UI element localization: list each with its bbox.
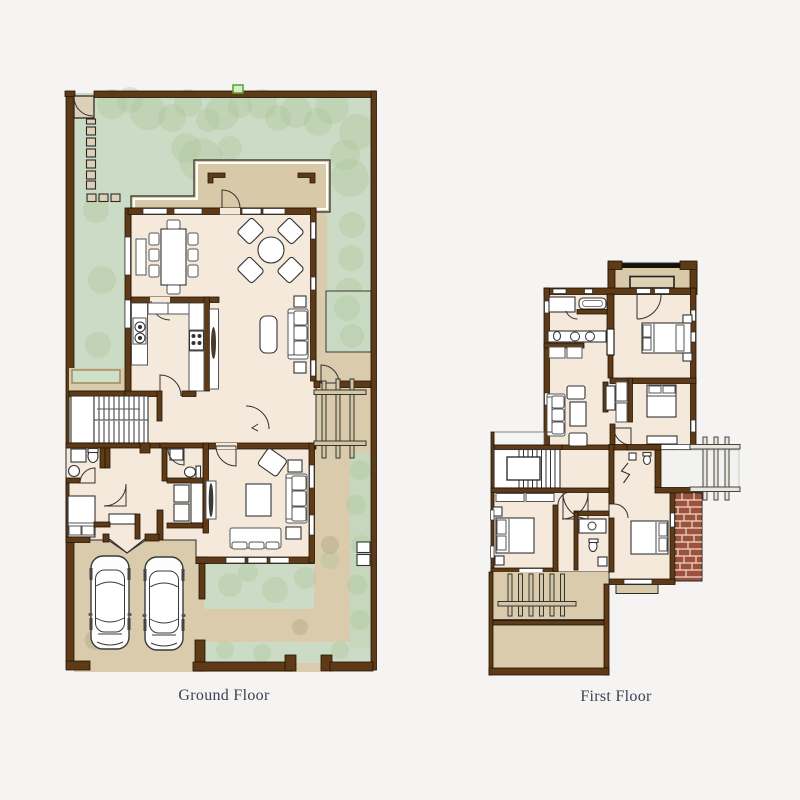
svg-text:First Floor: First Floor bbox=[580, 688, 652, 705]
svg-text:Ground Floor: Ground Floor bbox=[178, 687, 270, 704]
